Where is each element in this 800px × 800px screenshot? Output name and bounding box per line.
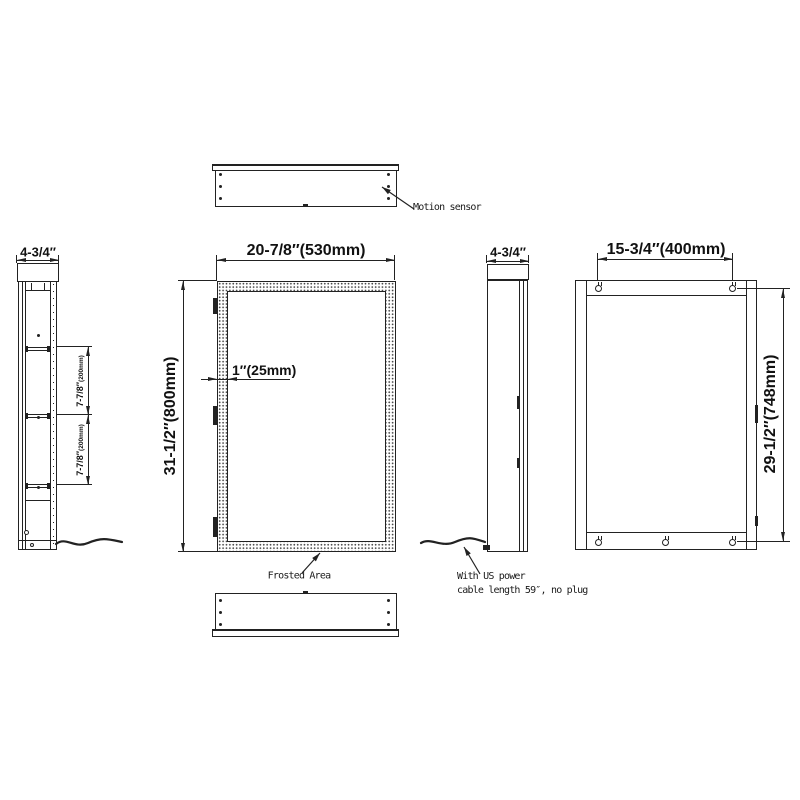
side-view-body (487, 280, 528, 552)
power-cable-left (50, 534, 128, 552)
side-view-top-cap (487, 264, 529, 280)
keyhole-hanger (595, 539, 602, 546)
front-height-dim-line (183, 281, 184, 552)
top-view-body (215, 170, 397, 207)
keyhole-hanger (729, 539, 736, 546)
shelf-spacing-upper-dimension: 7-7/8″(200mm) (70, 355, 88, 407)
technical-drawing-canvas: Motion sensor 4-3/4″ (0, 0, 800, 800)
shelf-spacing-lower-dimension: 7-7/8″(200mm) (70, 424, 88, 476)
keyhole-hanger (595, 285, 602, 292)
frosted-area-label: Frosted Area (268, 571, 331, 582)
hinge-tab (213, 406, 217, 425)
mirror-clear-area (227, 291, 386, 542)
door-catch-mark (517, 458, 520, 468)
power-note-line2: cable length 59″, no plug (457, 585, 588, 596)
bottom-view-front-strip (212, 629, 399, 637)
door-seal-dotted-line (53, 284, 54, 546)
hanger-spacing-dim-line (598, 259, 733, 260)
motion-sensor-dot (387, 173, 390, 176)
bottom-view-body (215, 593, 397, 630)
keyhole-hanger (662, 539, 669, 546)
hanger-height-dim-line (783, 289, 784, 541)
frost-band-width-dimension: 1″(25mm) (232, 362, 296, 378)
hinge-tab (213, 517, 217, 537)
hinge-tab (755, 405, 758, 423)
door-catch-mark (517, 396, 520, 409)
keyhole-hanger (729, 285, 736, 292)
front-width-dimension: 20-7/8″(530mm) (247, 242, 366, 260)
hanger-spacing-dimension: 15-3/4″(400mm) (607, 241, 726, 259)
front-width-dim-line (217, 260, 395, 261)
front-height-dimension: 31-1/2″(800mm) (162, 357, 180, 476)
power-note-line1: With US power (457, 571, 525, 582)
motion-sensor-label: Motion sensor (413, 202, 481, 213)
hinge-tab (213, 298, 217, 314)
left-view-top-cap (17, 263, 59, 282)
hanger-height-dimension: 29-1/2″(748mm) (762, 355, 780, 474)
back-view-body (575, 280, 757, 550)
side-depth-dimension: 4-3/4″ (490, 245, 526, 260)
hinge-tab (755, 516, 758, 526)
